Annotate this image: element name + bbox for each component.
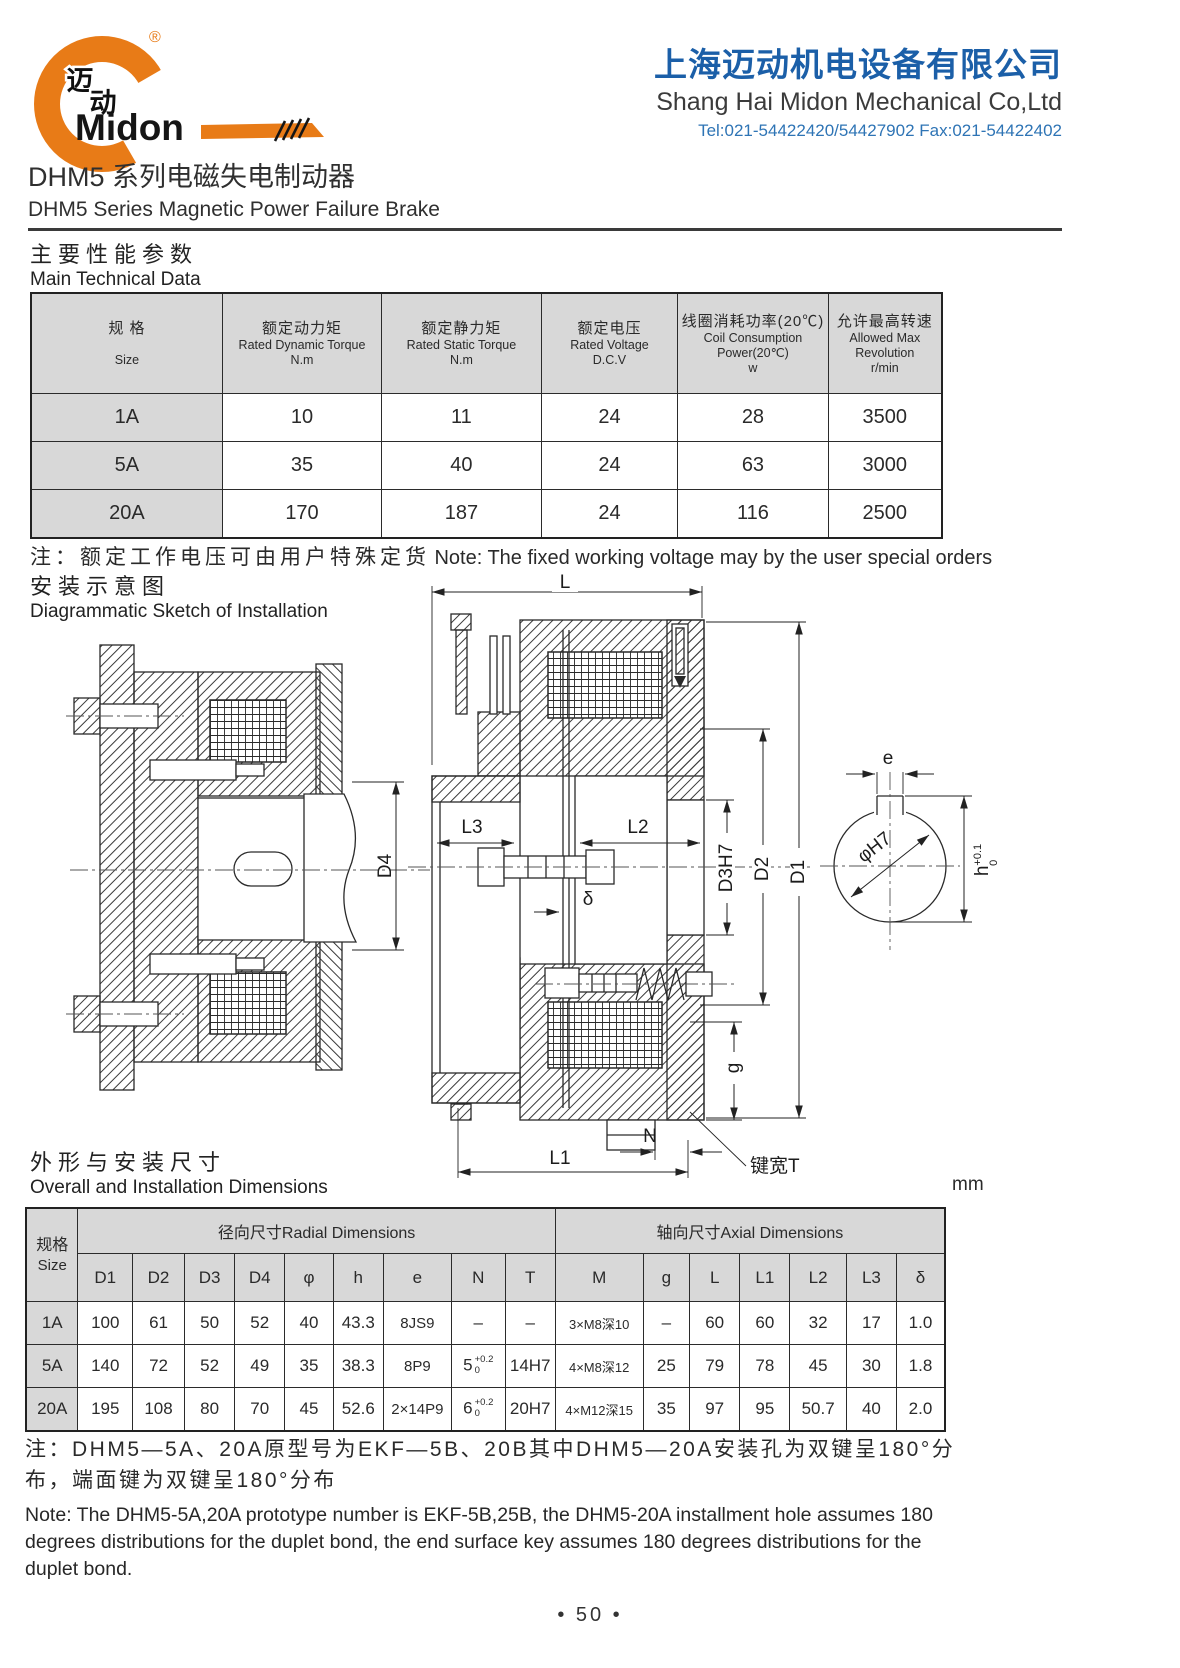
data-cell: 5A — [31, 442, 222, 490]
header-cell: L — [690, 1254, 740, 1302]
section-heading-zh: 外形与安装尺寸 — [30, 1150, 328, 1176]
data-cell: 52 — [185, 1345, 235, 1388]
data-cell: 50.7 — [790, 1388, 846, 1432]
dim-label-g: g — [723, 1063, 744, 1074]
data-cell: 95 — [740, 1388, 790, 1432]
header-cell: 规 格 Size — [31, 293, 222, 394]
data-cell: 4×M12深15 — [555, 1388, 643, 1432]
header-cell: φ — [285, 1254, 333, 1302]
table-row: 5A354024633000 — [31, 442, 942, 490]
header-cell: e — [383, 1254, 451, 1302]
table-row: 20A19510880704552.62×14P96+0.2020H74×M12… — [26, 1388, 945, 1432]
data-cell: 187 — [382, 490, 541, 539]
data-cell: 30 — [846, 1345, 896, 1388]
table-header-row: D1D2D3D4φheNTMgLL1L2L3δ — [26, 1254, 945, 1302]
data-cell: – — [643, 1302, 690, 1345]
data-cell: 100 — [78, 1302, 133, 1345]
keyway-slot — [234, 852, 292, 886]
data-cell: 17 — [846, 1302, 896, 1345]
company-name-zh: 上海迈动机电设备有限公司 — [654, 44, 1062, 86]
dim-label-l: L — [560, 572, 571, 593]
header-cell: g — [643, 1254, 690, 1302]
shaft — [304, 794, 356, 942]
data-cell: 43.3 — [333, 1302, 383, 1345]
data-cell: 24 — [541, 394, 678, 442]
catalog-page: 迈 动 Midon ® 上海迈动机电设备有限公司 Shang Hai Midon… — [0, 0, 1180, 1668]
company-info: 上海迈动机电设备有限公司 Shang Hai Midon Mechanical … — [654, 44, 1062, 142]
data-cell: 2×14P9 — [383, 1388, 451, 1432]
coil-section — [210, 972, 286, 1034]
page-number: • 50 • — [0, 1604, 1180, 1627]
table-header-row: 规 格 Size额定动力矩Rated Dynamic TorqueN.m额定静力… — [31, 293, 942, 394]
installation-side-view: D4 — [66, 645, 430, 1090]
data-cell: 70 — [235, 1388, 285, 1432]
company-logo: 迈 动 Midon ® — [25, 20, 335, 178]
section-heading-en: Main Technical Data — [30, 268, 201, 291]
note-zh: 注：DHM5—5A、20A原型号为EKF—5B、20B其中DHM5—20A安装孔… — [25, 1434, 967, 1496]
header-cell: 额定动力矩Rated Dynamic TorqueN.m — [222, 293, 381, 394]
data-cell: 32 — [790, 1302, 846, 1345]
logo-brand-text: Midon — [75, 107, 184, 148]
data-cell: 10 — [222, 394, 381, 442]
company-contact: Tel:021-54422420/54427902 Fax:021-544224… — [654, 119, 1062, 142]
data-cell: 79 — [690, 1345, 740, 1388]
data-cell: 50 — [185, 1302, 235, 1345]
coil-section — [548, 1002, 662, 1068]
data-cell: 61 — [133, 1302, 185, 1345]
dim-label-l3: L3 — [461, 817, 482, 838]
data-cell: 20A — [31, 490, 222, 539]
header-cell: T — [505, 1254, 555, 1302]
dim-label-n: N — [643, 1126, 657, 1147]
data-cell: 63 — [678, 442, 828, 490]
data-cell: 35 — [222, 442, 381, 490]
section-heading-en: Overall and Installation Dimensions — [30, 1176, 328, 1199]
dim-label-h: h+0.10 — [972, 844, 1000, 876]
dimensions-table: 规格Size径向尺寸Radial Dimensions轴向尺寸Axial Dim… — [25, 1207, 946, 1432]
header-cell: D4 — [235, 1254, 285, 1302]
header-cell: 规格Size — [26, 1208, 78, 1302]
data-cell: 2.0 — [897, 1388, 946, 1432]
dim-label-d3h7: D3H7 — [716, 844, 737, 893]
main-technical-table: 规 格 Size额定动力矩Rated Dynamic TorqueN.m额定静力… — [30, 292, 943, 539]
data-cell: 52 — [235, 1302, 285, 1345]
table-group-header-row: 规格Size径向尺寸Radial Dimensions轴向尺寸Axial Dim… — [26, 1208, 945, 1254]
header-cell: N — [451, 1254, 505, 1302]
header-cell: M — [555, 1254, 643, 1302]
data-cell: 49 — [235, 1345, 285, 1388]
dim-label-d4: D4 — [375, 853, 396, 878]
header-cell: D3 — [185, 1254, 235, 1302]
data-cell: 11 — [382, 394, 541, 442]
data-cell: 3500 — [828, 394, 942, 442]
data-cell: 24 — [541, 490, 678, 539]
dim-label-l2: L2 — [627, 817, 648, 838]
header-cell: 线圈消耗功率(20℃)Coil ConsumptionPower(20℃)w — [678, 293, 828, 394]
data-cell: 195 — [78, 1388, 133, 1432]
installation-drawings: D4 — [0, 540, 1180, 1190]
dim-label-d2: D2 — [752, 857, 773, 881]
coil-section — [548, 652, 662, 718]
title-en: DHM5 Series Magnetic Power Failure Brake — [28, 197, 1062, 223]
data-cell: 78 — [740, 1345, 790, 1388]
data-cell: 20A — [26, 1388, 78, 1432]
title-zh: DHM5 系列电磁失电制动器 — [28, 160, 1062, 194]
data-cell: – — [451, 1302, 505, 1345]
header-cell: 允许最高转速Allowed Max Revolutionr/min — [828, 293, 942, 394]
data-cell: 40 — [846, 1388, 896, 1432]
dim-label-l1: L1 — [549, 1148, 570, 1169]
data-cell: 5A — [26, 1345, 78, 1388]
header-cell: δ — [897, 1254, 946, 1302]
data-cell: 108 — [133, 1388, 185, 1432]
data-cell: 28 — [678, 394, 828, 442]
header-cell: h — [333, 1254, 383, 1302]
data-cell: 1A — [26, 1302, 78, 1345]
data-cell: 60 — [740, 1302, 790, 1345]
data-cell: 3000 — [828, 442, 942, 490]
prototype-note: 注：DHM5—5A、20A原型号为EKF—5B、20B其中DHM5—20A安装孔… — [25, 1434, 967, 1583]
dim-label-key-width: 键宽T — [750, 1155, 800, 1177]
dim-label-e: e — [883, 748, 894, 769]
data-cell: 35 — [643, 1388, 690, 1432]
data-cell: 1.0 — [897, 1302, 946, 1345]
coil-section — [210, 700, 286, 762]
data-cell: 45 — [285, 1388, 333, 1432]
header-cell: L1 — [740, 1254, 790, 1302]
unit-label: mm — [952, 1174, 984, 1196]
header-cell: 额定静力矩Rated Static TorqueN.m — [382, 293, 541, 394]
section-main-technical-data: 主要性能参数 Main Technical Data — [30, 242, 201, 291]
dim-label-delta: δ — [583, 889, 594, 910]
data-cell: – — [505, 1302, 555, 1345]
data-cell: 20H7 — [505, 1388, 555, 1432]
header-cell: 额定电压Rated VoltageD.C.V — [541, 293, 678, 394]
document-title: DHM5 系列电磁失电制动器 DHM5 Series Magnetic Powe… — [28, 160, 1062, 231]
header-cell: D2 — [133, 1254, 185, 1302]
company-name-en: Shang Hai Midon Mechanical Co,Ltd — [654, 86, 1062, 119]
data-cell: 3×M8深10 — [555, 1302, 643, 1345]
data-cell: 35 — [285, 1345, 333, 1388]
data-cell: 52.6 — [333, 1388, 383, 1432]
data-cell: 116 — [678, 490, 828, 539]
data-cell: 25 — [643, 1345, 690, 1388]
shaft-bore — [667, 800, 704, 935]
data-cell: 38.3 — [333, 1345, 383, 1388]
data-cell: 97 — [690, 1388, 740, 1432]
header-cell: D1 — [78, 1254, 133, 1302]
data-cell: 40 — [382, 442, 541, 490]
data-cell: 72 — [133, 1345, 185, 1388]
table-row: 5A1407252493538.38P95+0.2014H74×M8深12257… — [26, 1345, 945, 1388]
data-cell: 8JS9 — [383, 1302, 451, 1345]
data-cell: 6+0.20 — [451, 1388, 505, 1432]
header-cell: L3 — [846, 1254, 896, 1302]
data-cell: 1.8 — [897, 1345, 946, 1388]
header-cell: L2 — [790, 1254, 846, 1302]
data-cell: 14H7 — [505, 1345, 555, 1388]
data-cell: 170 — [222, 490, 381, 539]
data-cell: 8P9 — [383, 1345, 451, 1388]
data-cell: 60 — [690, 1302, 740, 1345]
table-row: 20A170187241162500 — [31, 490, 942, 539]
section-overall-dimensions: 外形与安装尺寸 Overall and Installation Dimensi… — [30, 1150, 328, 1199]
data-cell: 140 — [78, 1345, 133, 1388]
table-row: 1A1006150524043.38JS9––3×M8深10–606032171… — [26, 1302, 945, 1345]
note-en: Note: The DHM5-5A,20A prototype number i… — [25, 1502, 967, 1583]
data-cell: 1A — [31, 394, 222, 442]
data-cell: 40 — [285, 1302, 333, 1345]
table-row: 1A101124283500 — [31, 394, 942, 442]
data-cell: 4×M8深12 — [555, 1345, 643, 1388]
shaft-end-view: e φH7 h+0.10 — [820, 748, 1000, 950]
data-cell: 45 — [790, 1345, 846, 1388]
data-cell: 80 — [185, 1388, 235, 1432]
installation-section-view: L L3 L2 δ D3H7 D2 D1 — [408, 572, 814, 1178]
group-header-cell: 轴向尺寸Axial Dimensions — [555, 1208, 945, 1254]
registered-mark-icon: ® — [149, 29, 161, 46]
data-cell: 2500 — [828, 490, 942, 539]
data-cell: 24 — [541, 442, 678, 490]
data-cell: 5+0.20 — [451, 1345, 505, 1388]
dim-label-d1: D1 — [788, 860, 809, 884]
section-heading-zh: 主要性能参数 — [30, 242, 201, 268]
group-header-cell: 径向尺寸Radial Dimensions — [78, 1208, 555, 1254]
